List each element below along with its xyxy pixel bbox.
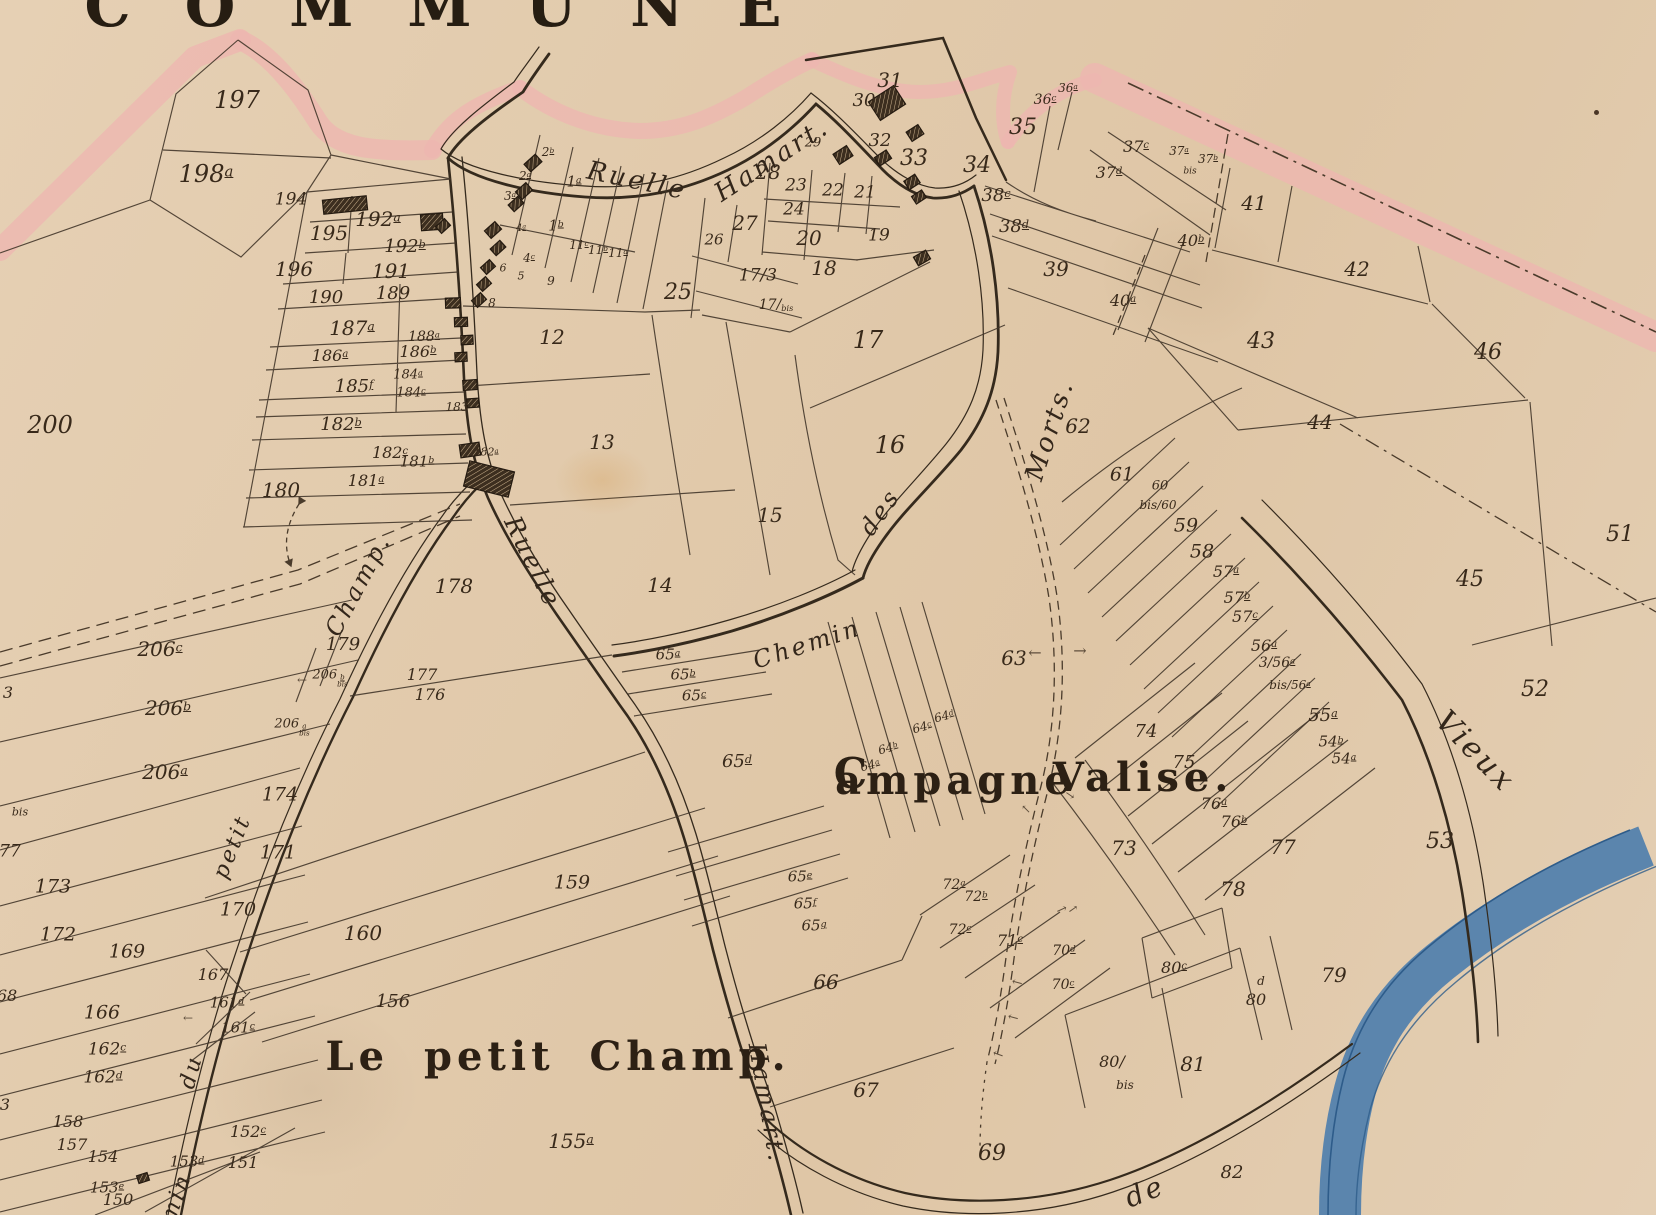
parcel-number: 21 xyxy=(854,185,876,202)
parcel-number: 53 xyxy=(1426,831,1454,853)
parcel-number: 150 xyxy=(103,1192,134,1208)
survey-arrow: → xyxy=(1073,643,1086,659)
parcel-number: 68 xyxy=(0,988,17,1004)
cadastral-map: COMMUNE 197198a200194195192a192b19619119… xyxy=(0,0,1656,1215)
parcel-number: 17 xyxy=(853,328,884,352)
parcel-number: 30 xyxy=(853,92,876,110)
parcel-number: 153d xyxy=(170,1155,205,1170)
parcel-number: 16 xyxy=(875,433,906,457)
parcel-number: 176 xyxy=(415,687,446,703)
parcel-number: 186a xyxy=(312,348,348,364)
parcel-number: 198a xyxy=(179,162,234,186)
parcel-number: 9 xyxy=(547,275,555,287)
parcel-number: 58 xyxy=(1190,543,1214,562)
parcel-number: 42 xyxy=(1344,259,1369,279)
parcel-number: 206bbis xyxy=(312,668,347,687)
parcel-number: d xyxy=(1257,975,1265,987)
parcel-number: 155a xyxy=(548,1131,594,1151)
parcel-number: 161d xyxy=(210,996,245,1011)
parcel-number: 37c xyxy=(1123,139,1149,155)
parcel-number: 185f xyxy=(335,378,374,396)
survey-arrow: ← xyxy=(297,674,307,686)
parcel-number: 70d xyxy=(1052,944,1075,958)
survey-arrow: ← xyxy=(183,1012,193,1024)
parcel-number: 37d xyxy=(1096,165,1123,181)
parcel-number: 6 xyxy=(500,263,507,274)
street-name: des xyxy=(856,484,905,539)
parcel-number: 206b xyxy=(145,698,191,718)
parcel-number: 11c xyxy=(569,239,588,251)
parcel-number: 158 xyxy=(53,1114,84,1130)
parcel-number: 57c xyxy=(1232,609,1258,625)
parcel-number: 18 xyxy=(811,258,836,278)
parcel-number: 17/3 xyxy=(739,268,777,285)
parcel-number: 166 xyxy=(84,1004,120,1023)
parcel-number: 76b xyxy=(1221,814,1248,830)
parcel-number: 13 xyxy=(589,432,614,452)
parcel-number: 39 xyxy=(1043,259,1068,279)
parcel-number: 24 xyxy=(783,202,805,219)
parcel-number: 37a xyxy=(1169,145,1189,157)
parcel-number: 196 xyxy=(275,259,313,279)
parcel-number: 177 xyxy=(407,667,438,683)
parcel-number: 206a xyxy=(142,762,188,782)
parcel-number: 172 xyxy=(40,926,76,945)
parcel-number: 5 xyxy=(518,271,525,282)
parcel-number: bis xyxy=(1183,168,1196,177)
map-labels-layer: 197198a200194195192a192b196191190189187a… xyxy=(0,0,1656,1215)
parcel-number: 52 xyxy=(1521,679,1549,701)
parcel-number: 159 xyxy=(554,874,590,893)
parcel-number: 40b xyxy=(1178,233,1205,249)
locality-name: Valise. xyxy=(1053,758,1234,798)
parcel-number: 12 xyxy=(539,327,564,347)
parcel-number: 182a xyxy=(473,447,498,458)
street-name: de xyxy=(1121,1171,1169,1212)
parcel-number: 17/bis xyxy=(759,298,793,312)
parcel-number: 183 xyxy=(446,401,469,413)
parcel-number: 63 xyxy=(1001,648,1026,668)
survey-arrow: ← xyxy=(1006,1010,1020,1025)
street-name: Chemin xyxy=(750,615,864,672)
parcel-number: 77 xyxy=(0,844,21,861)
parcel-number: 60 xyxy=(1152,480,1169,493)
parcel-number: 64b xyxy=(877,740,899,757)
parcel-number: 181a xyxy=(348,473,384,489)
parcel-number: 156 xyxy=(376,993,410,1011)
parcel-number: 161c xyxy=(221,1021,255,1036)
parcel-number: 191 xyxy=(372,261,410,281)
parcel-number: 25 xyxy=(664,282,692,304)
parcel-number: 77 xyxy=(1270,837,1295,857)
parcel-number: 182b xyxy=(320,416,362,434)
parcel-number: 2a xyxy=(519,170,531,182)
parcel-number: 65b xyxy=(670,668,695,683)
parcel-number: 3/56a xyxy=(1259,656,1296,670)
locality-name: ampagne xyxy=(835,761,1075,801)
parcel-number: 184a xyxy=(393,369,423,382)
parcel-number: 15 xyxy=(757,505,782,525)
parcel-number: 69 xyxy=(978,1143,1006,1165)
parcel-number: 33 xyxy=(900,148,928,170)
street-name: Ruelle xyxy=(585,158,690,205)
parcel-number: 174 xyxy=(262,786,298,805)
parcel-number: 45 xyxy=(1456,569,1484,591)
parcel-number: 38c xyxy=(981,187,1010,205)
parcel-number: 3a xyxy=(504,190,516,202)
parcel-number: 65c xyxy=(682,689,706,704)
parcel-number: 157 xyxy=(57,1137,88,1153)
parcel-number: 44 xyxy=(1307,412,1332,432)
parcel-number: 65f xyxy=(794,897,817,912)
parcel-number: 79 xyxy=(1321,965,1346,985)
parcel-number: 187a xyxy=(329,318,375,338)
parcel-number: 11a xyxy=(608,247,628,259)
parcel-number: 81 xyxy=(1180,1054,1205,1074)
parcel-number: 4a xyxy=(516,224,526,234)
parcel-number: 27 xyxy=(732,213,757,233)
parcel-number: 20 xyxy=(796,228,821,248)
parcel-number: 37b xyxy=(1198,153,1218,165)
parcel-number: 22 xyxy=(822,183,844,200)
parcel-number: 78 xyxy=(1220,879,1245,899)
parcel-number: 80c xyxy=(1161,960,1187,976)
parcel-number: 3 xyxy=(0,1097,10,1113)
street-name: Champ. xyxy=(321,530,395,640)
parcel-number: 206c xyxy=(137,639,182,659)
parcel-number: 71c xyxy=(997,933,1023,949)
parcel-number: 46 xyxy=(1474,342,1502,364)
parcel-number: 59 xyxy=(1174,517,1198,536)
parcel-number: 192b xyxy=(384,238,426,256)
parcel-number: 167 xyxy=(198,967,229,983)
parcel-number: 74 xyxy=(1135,723,1158,741)
parcel-number: 32 xyxy=(869,132,892,150)
parcel-number: 72b xyxy=(964,890,987,904)
parcel-number: 51 xyxy=(1606,524,1634,546)
parcel-number: 162c xyxy=(88,1042,126,1059)
parcel-number: 1a xyxy=(566,175,581,190)
parcel-number: 65a xyxy=(656,648,681,663)
parcel-number: 31 xyxy=(877,70,902,90)
parcel-number: 160 xyxy=(344,923,382,943)
street-name: Ruelle xyxy=(500,512,566,612)
parcel-number: 57a xyxy=(1213,564,1239,580)
parcel-number: 169 xyxy=(109,943,145,962)
parcel-number: 34 xyxy=(963,155,991,177)
parcel-number: 186b xyxy=(400,344,437,360)
parcel-number: 190 xyxy=(309,289,343,307)
parcel-number: 43 xyxy=(1247,331,1275,353)
street-name: Hamart. xyxy=(710,114,834,207)
parcel-number: bis xyxy=(12,807,28,818)
street-name: petit xyxy=(210,812,255,882)
parcel-number: 14 xyxy=(647,575,672,595)
parcel-number: 56a xyxy=(1251,638,1277,654)
parcel-number: 72a xyxy=(943,878,966,892)
parcel-number: bis/60 xyxy=(1140,499,1177,511)
parcel-number: 38d xyxy=(999,218,1029,236)
parcel-number: 171 xyxy=(260,844,296,863)
survey-arrow: ↖ xyxy=(1021,803,1031,815)
parcel-number: 151 xyxy=(228,1155,259,1171)
street-name: du xyxy=(177,1053,207,1092)
parcel-number: bis/56a xyxy=(1269,679,1310,691)
parcel-number: 180 xyxy=(262,480,300,500)
parcel-number: 189 xyxy=(376,285,410,303)
parcel-number: 197 xyxy=(214,88,260,112)
parcel-number: 3 xyxy=(3,685,13,701)
parcel-number: 162d xyxy=(83,1070,122,1087)
parcel-number: 80/ xyxy=(1099,1054,1125,1070)
locality-name: Le petit Champ. xyxy=(325,1037,790,1077)
parcel-number: 23 xyxy=(785,178,807,195)
parcel-number: 54b xyxy=(1318,735,1343,750)
parcel-number: 184c xyxy=(396,387,425,400)
parcel-number: 36a xyxy=(1058,82,1078,94)
parcel-number: 41 xyxy=(1241,193,1266,213)
parcel-number: 55a xyxy=(1308,707,1338,725)
parcel-number: 40a xyxy=(1110,293,1136,309)
parcel-number: 192a xyxy=(355,209,401,229)
parcel-number: bis xyxy=(1116,1079,1134,1091)
parcel-number: 65d xyxy=(722,753,752,771)
parcel-number: 8 xyxy=(488,297,496,309)
parcel-number: 54a xyxy=(1332,752,1357,767)
parcel-number: 64d xyxy=(933,708,955,725)
parcel-number: 26 xyxy=(704,233,723,248)
parcel-number: 206abis xyxy=(274,717,309,736)
parcel-number: 64c xyxy=(911,719,933,736)
parcel-number: 70c xyxy=(1052,978,1075,992)
parcel-number: 67 xyxy=(853,1080,878,1100)
parcel-number: 35 xyxy=(1009,117,1037,139)
parcel-number: 80 xyxy=(1246,992,1266,1008)
parcel-number: 154 xyxy=(88,1149,119,1165)
parcel-number: 173 xyxy=(35,878,71,897)
parcel-number: 2b xyxy=(542,146,554,158)
parcel-number: 195 xyxy=(310,223,348,243)
parcel-number: 61 xyxy=(1110,466,1134,485)
parcel-number: 73 xyxy=(1111,838,1136,858)
parcel-number: 170 xyxy=(220,901,256,920)
parcel-number: 36c xyxy=(1034,93,1057,107)
parcel-number: 11b xyxy=(588,244,608,256)
street-name: Vieux xyxy=(1430,706,1521,799)
parcel-number: 152c xyxy=(230,1124,266,1140)
parcel-number: 65g xyxy=(801,919,826,934)
survey-arrow: ← xyxy=(1010,975,1024,990)
parcel-number: 72c xyxy=(949,923,972,937)
parcel-number: 65e xyxy=(788,870,813,885)
parcel-number: 57b xyxy=(1224,590,1251,606)
parcel-number: 181b xyxy=(400,455,435,470)
survey-arrow: ← xyxy=(991,1047,1006,1063)
parcel-number: 66 xyxy=(813,972,838,992)
street-name: min xyxy=(158,1170,196,1215)
parcel-number: 82 xyxy=(1221,1164,1244,1182)
parcel-number: 19 xyxy=(868,228,890,245)
parcel-number: 194 xyxy=(275,192,307,209)
parcel-number: 4c xyxy=(523,252,535,264)
parcel-number: 178 xyxy=(435,576,473,596)
parcel-number: 1b xyxy=(548,219,564,234)
parcel-number: 200 xyxy=(27,413,73,437)
survey-arrow: ← xyxy=(1028,645,1041,661)
